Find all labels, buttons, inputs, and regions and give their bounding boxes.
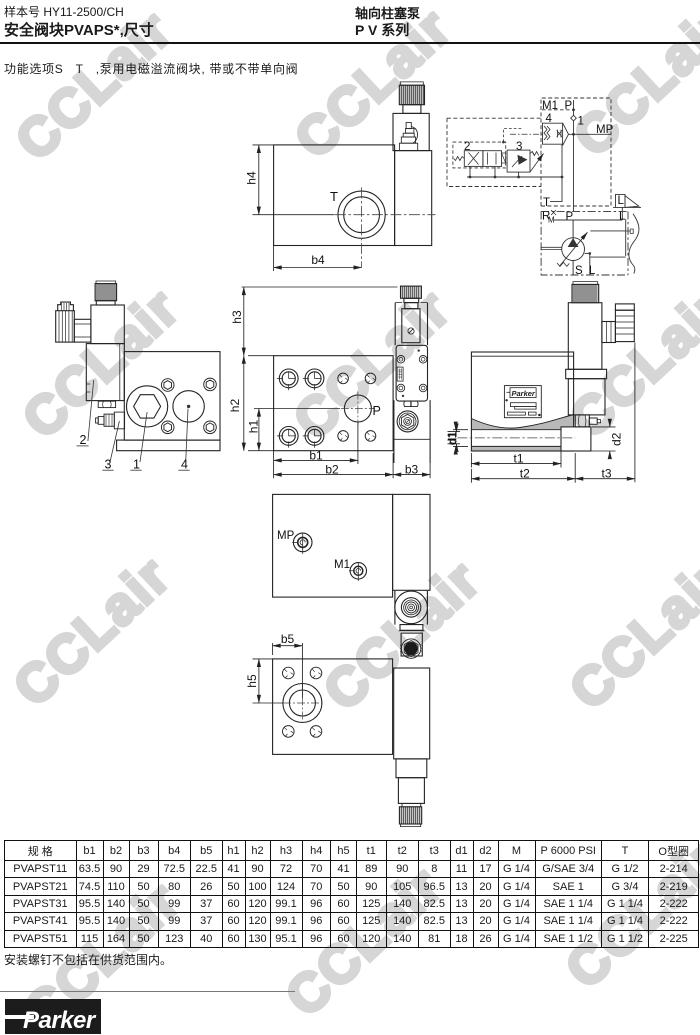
svg-text:h4: h4	[245, 171, 259, 185]
svg-text:3: 3	[105, 458, 112, 472]
svg-text:3: 3	[516, 141, 522, 153]
svg-text:1: 1	[133, 458, 140, 472]
svg-text:MP: MP	[277, 530, 295, 542]
svg-text:d2: d2	[610, 432, 624, 446]
svg-text:h2: h2	[228, 399, 242, 413]
svg-text:b5: b5	[281, 632, 295, 646]
svg-text:L: L	[618, 195, 625, 207]
svg-text:T: T	[543, 197, 550, 209]
svg-text:t3: t3	[601, 467, 611, 481]
svg-text:b1: b1	[309, 449, 323, 463]
svg-text:M1: M1	[334, 559, 350, 571]
svg-text:4: 4	[181, 458, 188, 472]
svg-text:h3: h3	[230, 310, 244, 324]
svg-text:2: 2	[80, 433, 87, 447]
svg-text:1: 1	[578, 116, 584, 128]
svg-text:b2: b2	[325, 463, 339, 477]
svg-text:t2: t2	[520, 467, 530, 481]
svg-text:b4: b4	[311, 253, 325, 267]
svg-text:h5: h5	[245, 674, 259, 688]
svg-text:b3: b3	[405, 463, 419, 477]
svg-text:P: P	[373, 404, 381, 418]
svg-text:d1: d1	[445, 432, 459, 446]
svg-text:P: P	[566, 211, 574, 223]
svg-text:T: T	[330, 189, 338, 204]
svg-text:Parker: Parker	[512, 389, 536, 398]
svg-text:h1: h1	[247, 420, 261, 434]
svg-text:t1: t1	[513, 452, 523, 466]
svg-text:2: 2	[464, 141, 470, 153]
